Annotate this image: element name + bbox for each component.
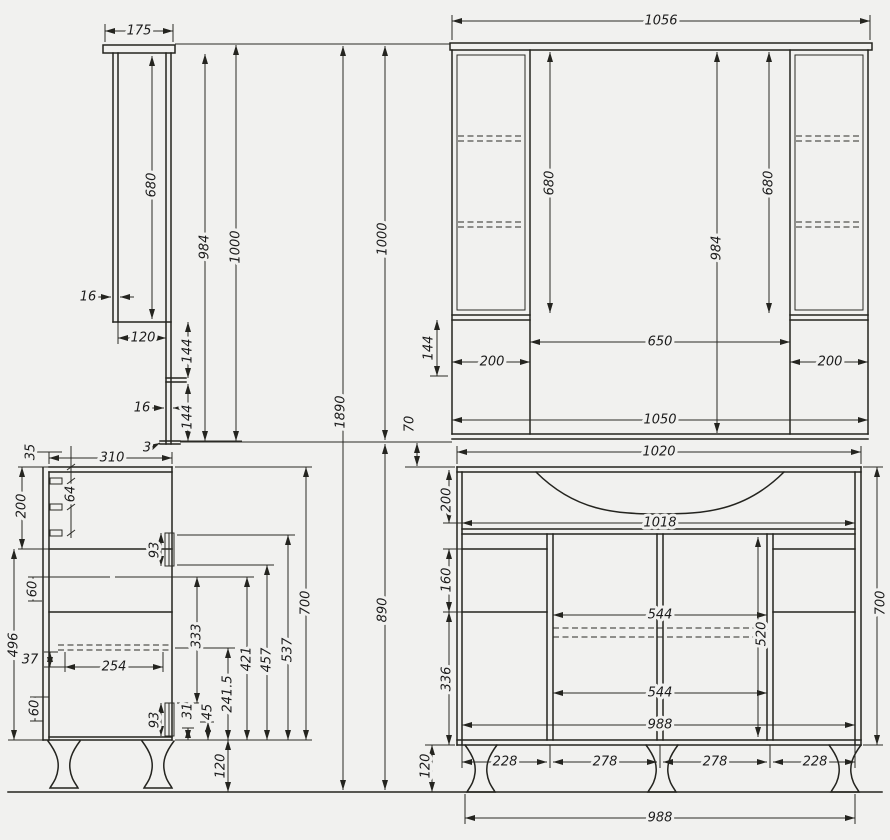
dim-mirror-side-panel-thickness-top: 16 <box>80 290 97 305</box>
dim-mirror-front-right-door-height: 680 <box>762 171 777 196</box>
cabinet-leg <box>142 741 174 788</box>
dim-base-side-h537: 537 <box>281 637 296 663</box>
base-cabinet-side-view <box>43 467 174 788</box>
technical-drawing-sheet: 175 680 984 1000 16 120 144 16 144 3 <box>0 0 890 840</box>
dim-base-front-basin-height: 200 <box>440 488 455 513</box>
dim-base-side-handle-lower: 93 <box>148 712 163 729</box>
dim-base-front-h520: 520 <box>755 622 770 647</box>
dim-base-side-h31: 31 <box>181 703 196 720</box>
dim-mirror-front-left-box-width: 200 <box>480 355 505 370</box>
dim-base-side-h496: 496 <box>7 633 22 658</box>
dim-mirror-front-height: 1000 <box>376 222 391 255</box>
dim-mirror-side-depth-120: 120 <box>131 331 156 346</box>
dim-mirror-front-body-width: 1050 <box>643 413 676 428</box>
dim-base-side-top-35: 35 <box>24 444 39 461</box>
dim-mirror-front-width: 1056 <box>644 14 677 29</box>
dim-mirror-front-center-span: 650 <box>648 335 673 350</box>
cabinet-leg <box>646 745 678 792</box>
dim-mirror-side-depth: 175 <box>127 24 152 39</box>
dim-base-front-width: 1020 <box>642 445 675 460</box>
cabinet-leg <box>48 741 80 788</box>
dim-base-side-legs: 120 <box>214 754 229 779</box>
dim-base-side-handle-upper: 93 <box>148 542 163 559</box>
dim-mirror-side-seg-144-bottom: 144 <box>181 405 196 430</box>
drawing-canvas: 175 680 984 1000 16 120 144 16 144 3 <box>0 0 890 840</box>
dim-base-side-shelf-width: 254 <box>102 660 127 675</box>
dim-base-front-overall-988: 988 <box>648 811 673 826</box>
mirror-side-dimensions: 175 680 984 1000 16 120 144 16 144 3 <box>80 24 244 456</box>
mirror-cabinet-front-view <box>450 43 872 439</box>
washbasin-curve <box>536 472 784 514</box>
mirror-cabinet-side-view <box>103 45 186 444</box>
dim-base-front-drawer-height: 160 <box>440 568 455 593</box>
dim-mirror-side-seg-144-top: 144 <box>181 339 196 364</box>
dim-base-side-depth: 310 <box>100 451 125 466</box>
wall-bracket <box>50 504 62 510</box>
dim-base-side-h241-5: 241.5 <box>221 675 236 712</box>
dim-base-front-inner-988: 988 <box>648 718 673 733</box>
dim-base-side-height: 700 <box>299 591 314 616</box>
dim-mirror-front-left-door-height: 680 <box>543 171 558 196</box>
dim-base-front-inner-width: 1018 <box>643 516 676 531</box>
dim-base-side-h60-upper: 60 <box>26 581 41 598</box>
dim-gap-height: 70 <box>403 416 418 433</box>
dim-base-front-span-544-top: 544 <box>648 608 673 623</box>
dim-base-side-h421: 421 <box>240 647 255 672</box>
dim-base-side-bracket-pitch: 64 <box>64 486 79 503</box>
dim-mirror-front-right-box-width: 200 <box>818 355 843 370</box>
wall-bracket <box>50 530 62 536</box>
dim-mirror-side-inner-height: 984 <box>198 235 213 260</box>
dim-base-side-h45: 45 <box>201 704 216 721</box>
cabinet-leg <box>829 745 861 792</box>
dim-base-side-h200: 200 <box>15 494 30 519</box>
dim-base-front-h336: 336 <box>440 667 455 692</box>
dim-base-front-door-228-left: 228 <box>493 755 518 770</box>
dim-base-side-h60-lower: 60 <box>28 700 43 717</box>
dim-lower-section-height: 890 <box>376 598 391 623</box>
dim-base-front-legs: 120 <box>419 754 434 779</box>
dim-mirror-side-total-height: 1000 <box>229 230 244 263</box>
wall-bracket <box>50 478 62 484</box>
base-front-dimensions: 1020 200 1018 160 336 544 520 544 988 22… <box>419 445 889 826</box>
dim-mirror-front-inner-height: 984 <box>710 236 725 261</box>
dim-mirror-side-bottom-thickness: 3 <box>143 441 151 456</box>
dim-mirror-side-door-height: 680 <box>145 173 160 198</box>
dim-base-front-height: 700 <box>874 591 889 616</box>
dim-base-side-h37: 37 <box>22 653 39 668</box>
dim-base-front-door-278-left: 278 <box>593 755 618 770</box>
dim-base-side-h333: 333 <box>190 624 205 649</box>
dim-base-front-door-278-right: 278 <box>703 755 728 770</box>
dim-base-front-span-544-bottom: 544 <box>648 686 673 701</box>
dim-overall-height: 1890 <box>334 395 349 428</box>
dim-mirror-front-shelf-height: 144 <box>422 336 437 361</box>
dim-base-side-h457: 457 <box>260 647 275 673</box>
dim-mirror-side-panel-thickness-bottom: 16 <box>134 401 151 416</box>
dim-base-front-door-228-right: 228 <box>803 755 828 770</box>
